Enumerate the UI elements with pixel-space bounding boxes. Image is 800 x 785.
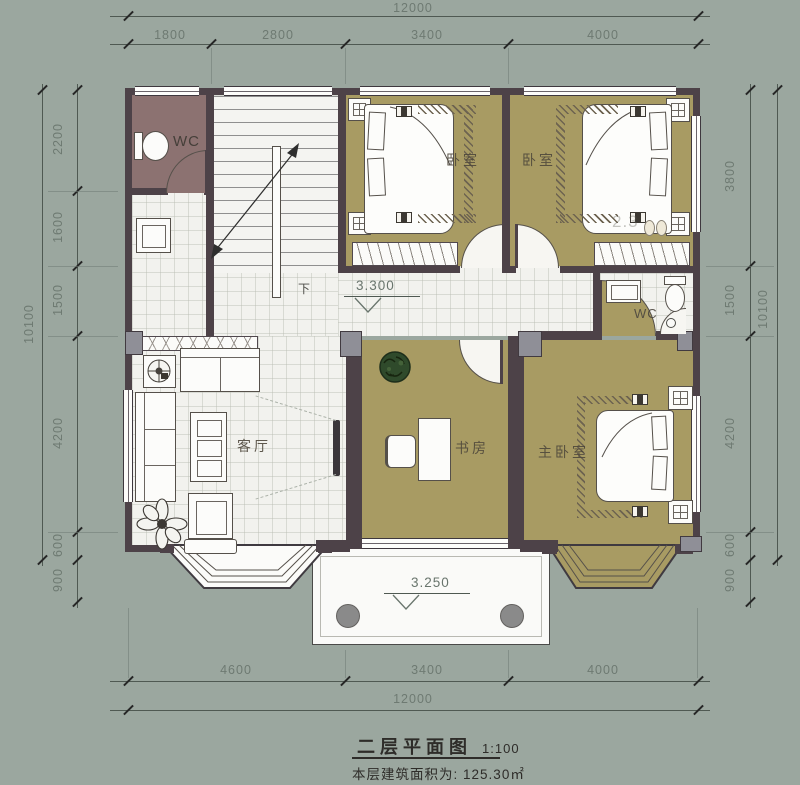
living-armchair [188, 493, 233, 539]
extension-line [48, 191, 118, 192]
living-sofa-left [135, 392, 176, 502]
dim-top-seg-line [110, 44, 710, 45]
slipper-right [656, 220, 667, 236]
dim-bottom-seg-line [110, 681, 710, 682]
wall-wc1-south-a [125, 188, 168, 195]
extension-line [128, 608, 129, 678]
wall-bedroom2-south [560, 266, 693, 273]
bedroom2-door-leaf [515, 224, 518, 268]
dim-top-seg0: 1800 [140, 28, 200, 42]
dim-bottom-seg2: 4000 [573, 663, 633, 677]
balcony-level-triangle [392, 594, 420, 611]
wc1-label: WC [173, 133, 200, 150]
living-sofa-left-div2 [144, 465, 175, 466]
bedroom1-pillow-bottom [367, 158, 386, 197]
bedroom2-rug-left [556, 105, 565, 223]
living-fan-plant [136, 498, 188, 550]
master-door-leaf [599, 280, 602, 336]
master-nightstand-top [668, 386, 693, 410]
living-tv [333, 420, 340, 476]
extension-line [508, 650, 509, 678]
coffee-table-sq1 [197, 420, 222, 437]
balcony-column-right [500, 604, 524, 628]
extension-line [697, 608, 698, 678]
living-corner-plant [146, 358, 173, 385]
wc1-door-leaf [205, 150, 208, 193]
dim-left-total-line [42, 84, 43, 566]
bedroom1-pillow-top [367, 112, 386, 151]
hall-washbasin-inner [142, 225, 166, 248]
dim-top-seg2: 3400 [397, 28, 457, 42]
wall-south-pier-right [520, 540, 558, 552]
wc2-doorknob [666, 318, 676, 328]
living-sofa-top-back [181, 349, 259, 358]
hall-level-triangle [354, 297, 382, 314]
extension-line [48, 532, 118, 533]
bedroom1-speakers-top [396, 106, 412, 117]
wc2-basin [606, 280, 641, 303]
area-note: 本层建筑面积为: 125.30㎡ [352, 763, 525, 783]
window-study-balcony [362, 538, 508, 549]
title-underline [352, 757, 500, 759]
window-top-stairs [224, 86, 332, 96]
hall-washbasin [136, 218, 171, 253]
dim-left-seg1: 1600 [51, 197, 65, 257]
dim-right-seg2: 4200 [723, 403, 737, 463]
stair-down-label: 下 [298, 280, 311, 297]
dim-right-seg0: 3800 [723, 146, 737, 206]
extension-line [48, 266, 118, 267]
drawing-title: 二层平面图 1:100 [357, 733, 520, 759]
dim-right-seg4: 900 [723, 550, 737, 610]
living-coffee-table [190, 412, 227, 482]
dim-top-total: 12000 [383, 1, 443, 15]
dim-top-total-line [110, 16, 710, 17]
study-plant [378, 350, 412, 384]
extension-line [706, 532, 774, 533]
wc2-label: WC [634, 306, 658, 321]
dim-right-seg1: 1500 [723, 270, 737, 330]
study-label: 书房 [455, 438, 489, 458]
drawing-scale: 1:100 [482, 741, 520, 756]
dim-left-seg0: 2200 [51, 109, 65, 169]
master-nightstand-bottom [668, 500, 693, 524]
bedroom2-label: 卧室 [522, 150, 556, 170]
wc2-basin-inner [611, 285, 638, 300]
window-right-master [691, 396, 701, 512]
bedroom2-pillow-top [649, 112, 668, 151]
master-duvet-fold [598, 411, 654, 461]
master-speakers-bottom [632, 506, 648, 517]
master-bay-window [542, 544, 693, 602]
faint-number: 2.3 [612, 212, 639, 232]
bedroom1-speakers-bottom [396, 212, 412, 223]
bedroom1-wardrobe [352, 242, 458, 266]
study-chair [385, 435, 416, 468]
bedroom1-rug-bottom [418, 214, 476, 223]
area-value: 125.30㎡ [463, 767, 525, 782]
window-top-bedroom1 [360, 86, 490, 96]
window-right-bedroom2 [691, 116, 701, 232]
master-speakers-top [632, 394, 648, 405]
study-desk [418, 418, 451, 481]
bedroom1-label: 卧室 [446, 150, 480, 170]
extension-line [706, 336, 774, 337]
living-sofa-left-div1 [144, 429, 175, 430]
study-door-leaf [500, 340, 503, 384]
window-left-living [123, 390, 133, 502]
area-label: 本层建筑面积为: [352, 767, 458, 782]
stair-break-line [205, 135, 305, 265]
pier-study-east [518, 331, 542, 357]
window-top-wc [135, 86, 199, 96]
bedroom2-wardrobe [594, 242, 690, 266]
living-sofa-top [180, 348, 260, 392]
living-sofa-left-back [136, 393, 145, 501]
wall-south-pier-left [316, 540, 350, 552]
balcony-level-text: 3.250 [411, 575, 450, 590]
bedroom1-door-leaf [502, 224, 505, 268]
window-top-bedroom2 [524, 86, 676, 96]
extension-line [508, 48, 509, 84]
dim-bottom-total-line [110, 710, 710, 711]
wall-study-south-left [346, 538, 362, 549]
balcony [312, 548, 550, 645]
bedroom2-speakers-top [630, 106, 646, 117]
dim-left-seg5: 900 [51, 550, 65, 610]
dim-left-seg2: 1500 [51, 270, 65, 330]
floorplan-canvas: 下 卧室 卧室 2.3 WC WC [0, 0, 800, 785]
slipper-left [644, 220, 655, 236]
coffee-table-sq2 [197, 440, 222, 457]
balcony-column-left [336, 604, 360, 628]
dim-bottom-total: 12000 [383, 692, 443, 706]
dim-top-seg1: 2800 [248, 28, 308, 42]
living-armchair-back [184, 539, 237, 554]
wall-bedroom1-south [346, 266, 460, 273]
wall-living-study [346, 336, 362, 548]
extension-line [211, 48, 212, 84]
wall-stairs-bedroom1 [338, 88, 346, 273]
dim-left-total: 10100 [22, 294, 36, 354]
extension-line [345, 650, 346, 678]
bedroom2-rug-top [560, 105, 618, 114]
dim-left-seg3: 4200 [51, 403, 65, 463]
extension-line [706, 266, 774, 267]
dim-right-total: 10100 [756, 279, 770, 339]
dim-top-seg3: 4000 [573, 28, 633, 42]
wc1-toilet-bowl [142, 131, 169, 161]
living-label: 客厅 [237, 436, 271, 456]
master-label: 主卧室 [538, 442, 589, 462]
coffee-table-sq3 [197, 460, 222, 477]
bedroom2-pillow-bottom [649, 158, 668, 197]
living-sofa-top-divider [220, 357, 221, 391]
wc2-toilet-bowl [665, 284, 685, 312]
dim-right-total-line [777, 84, 778, 566]
pier-study-west [340, 331, 362, 357]
pier-right-bottom [680, 536, 702, 552]
bedroom2-rug-bottom [560, 214, 618, 223]
living-armchair-cushion [196, 501, 227, 535]
extension-line [345, 48, 346, 84]
pier-hall-west [125, 331, 143, 355]
wall-study-master [508, 336, 524, 548]
dim-bottom-seg1: 3400 [397, 663, 457, 677]
dim-bottom-seg0: 4600 [206, 663, 266, 677]
pier-master-east [677, 331, 693, 351]
hall-level-text: 3.300 [356, 278, 395, 293]
hall-left-floor [132, 188, 213, 336]
drawing-title-text: 二层平面图 [357, 737, 472, 757]
extension-line [48, 336, 118, 337]
